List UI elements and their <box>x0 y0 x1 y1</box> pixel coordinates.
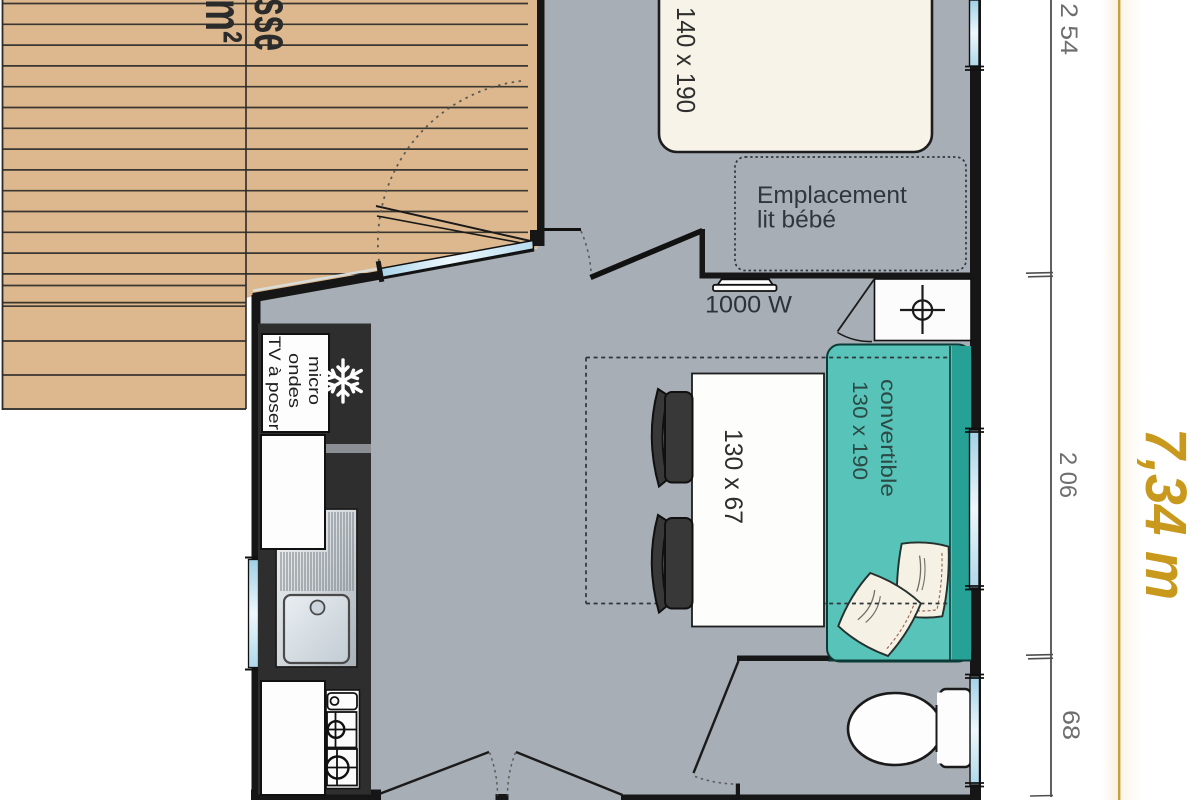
svg-text:m²: m² <box>194 0 252 43</box>
svg-text:lit bébé: lit bébé <box>757 207 836 234</box>
svg-text:2 54: 2 54 <box>1055 3 1082 55</box>
svg-text:micro: micro <box>305 356 323 405</box>
svg-text:TV à poser: TV à poser <box>265 336 283 431</box>
svg-text:130 x 67: 130 x 67 <box>719 429 747 524</box>
svg-text:7,34 m: 7,34 m <box>1133 428 1198 600</box>
svg-text:1000 W: 1000 W <box>705 292 793 319</box>
svg-text:68: 68 <box>1057 710 1084 740</box>
svg-text:140 x 190: 140 x 190 <box>671 7 701 113</box>
svg-text:130 x 190: 130 x 190 <box>848 381 872 480</box>
svg-text:convertible: convertible <box>876 379 900 497</box>
svg-text:ondes: ondes <box>285 353 303 408</box>
svg-text:2 06: 2 06 <box>1054 452 1081 498</box>
svg-text:Emplacement: Emplacement <box>757 182 907 209</box>
